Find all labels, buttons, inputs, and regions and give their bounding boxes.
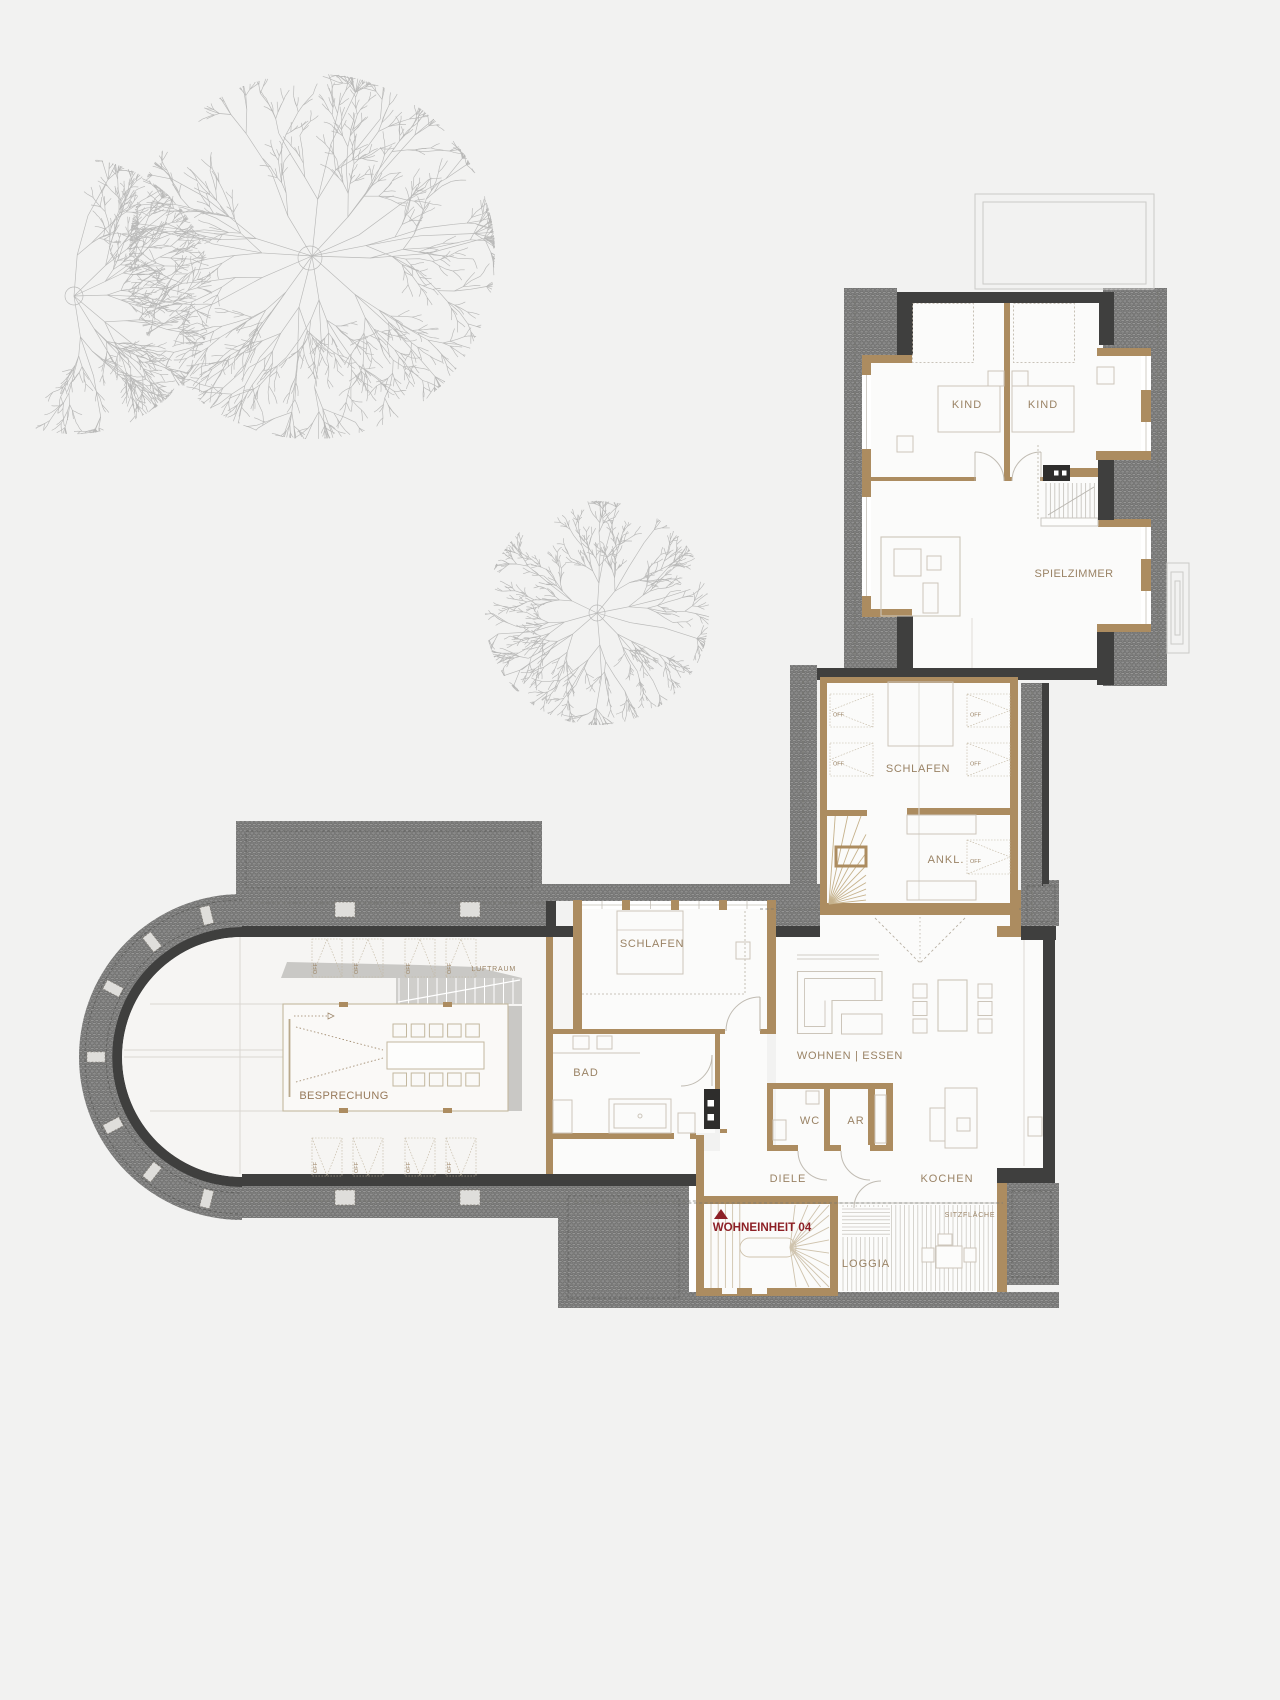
svg-text:OFF: OFF — [833, 713, 845, 719]
svg-text:OFF: OFF — [447, 1161, 453, 1173]
svg-text:KOCHEN: KOCHEN — [920, 1173, 973, 1185]
svg-text:OFF: OFF — [406, 1161, 412, 1173]
svg-text:OFF: OFF — [970, 762, 982, 768]
svg-text:OFF: OFF — [970, 859, 982, 865]
svg-text:LOGGIA: LOGGIA — [842, 1258, 890, 1270]
svg-text:ANKL.: ANKL. — [928, 854, 965, 866]
svg-text:SCHLAFEN: SCHLAFEN — [886, 763, 950, 775]
svg-text:OFF: OFF — [354, 1161, 360, 1173]
svg-text:OFF: OFF — [970, 713, 982, 719]
svg-text:KIND: KIND — [1028, 399, 1058, 411]
svg-text:OFF: OFF — [313, 962, 319, 974]
svg-text:DIELE: DIELE — [770, 1173, 807, 1185]
svg-text:WOHNEINHEIT 04: WOHNEINHEIT 04 — [713, 1221, 812, 1234]
svg-text:SCHLAFEN: SCHLAFEN — [620, 938, 684, 950]
svg-text:OFF: OFF — [447, 962, 453, 974]
svg-text:SITZFLÄCHE: SITZFLÄCHE — [945, 1211, 996, 1219]
svg-text:SPIELZIMMER: SPIELZIMMER — [1035, 568, 1114, 580]
svg-text:OFF: OFF — [833, 762, 845, 768]
svg-text:BAD: BAD — [573, 1067, 599, 1079]
svg-text:AR: AR — [847, 1115, 864, 1127]
svg-text:OFF: OFF — [354, 962, 360, 974]
svg-text:LUFTRAUM: LUFTRAUM — [471, 966, 516, 973]
svg-text:BESPRECHUNG: BESPRECHUNG — [299, 1090, 388, 1102]
svg-text:WOHNEN | ESSEN: WOHNEN | ESSEN — [797, 1050, 903, 1062]
svg-text:OFF: OFF — [406, 962, 412, 974]
svg-text:KIND: KIND — [952, 399, 982, 411]
svg-text:WC: WC — [800, 1115, 820, 1127]
svg-text:OFF: OFF — [313, 1161, 319, 1173]
